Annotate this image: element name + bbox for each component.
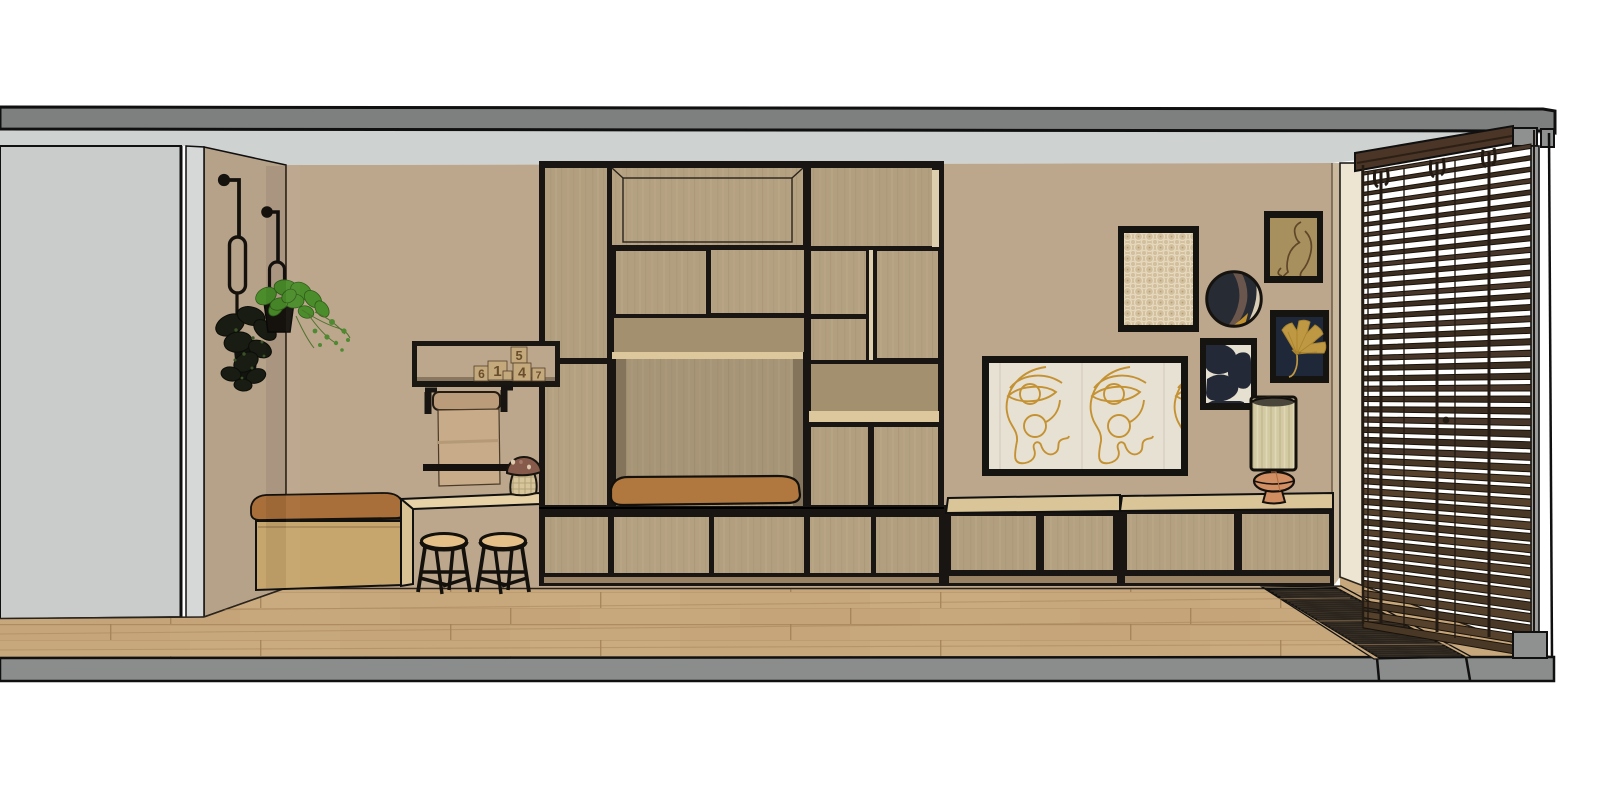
- svg-text:4: 4: [518, 365, 526, 381]
- svg-text:7: 7: [536, 370, 542, 381]
- svg-text:5: 5: [515, 348, 522, 363]
- svg-text:1: 1: [493, 363, 502, 380]
- svg-text:6: 6: [478, 367, 485, 381]
